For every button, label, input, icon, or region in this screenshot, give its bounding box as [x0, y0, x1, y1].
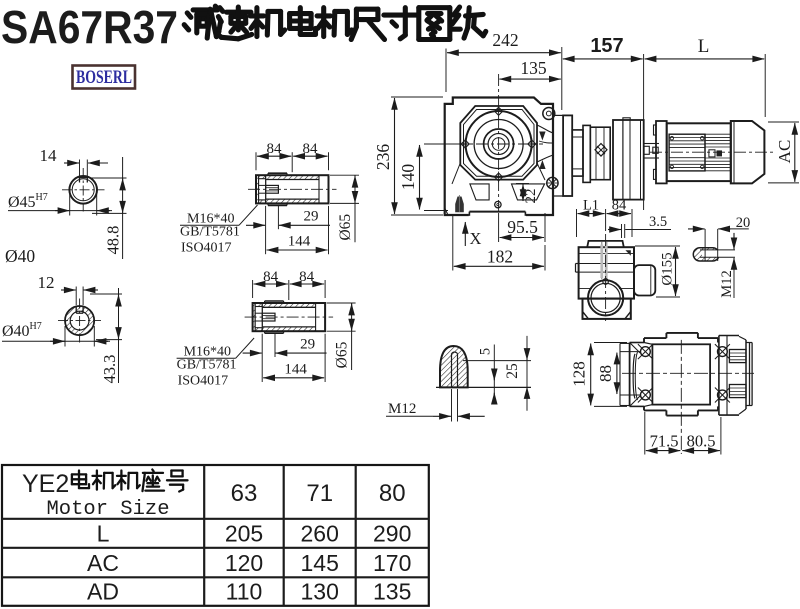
svg-text:L1: L1	[583, 198, 599, 214]
svg-text:63: 63	[231, 480, 258, 507]
svg-text:3.5: 3.5	[649, 214, 667, 230]
svg-text:144: 144	[284, 362, 307, 378]
svg-text:ISO4017: ISO4017	[178, 374, 229, 389]
svg-text:170: 170	[373, 550, 411, 576]
svg-text:290: 290	[373, 521, 411, 547]
svg-text:AC: AC	[87, 550, 119, 576]
svg-text:84: 84	[263, 269, 279, 285]
svg-text:14: 14	[40, 146, 58, 165]
svg-text:95.5: 95.5	[507, 217, 538, 237]
svg-text:Ø155: Ø155	[659, 252, 675, 285]
svg-text:ISO4017: ISO4017	[181, 241, 232, 256]
svg-text:22: 22	[523, 189, 539, 204]
svg-text:12: 12	[38, 273, 55, 292]
svg-text:120: 120	[225, 550, 263, 576]
svg-text:128: 128	[569, 361, 588, 387]
svg-text:157: 157	[590, 35, 623, 57]
svg-text:5: 5	[478, 348, 494, 355]
svg-text:29: 29	[304, 209, 319, 225]
svg-text:135: 135	[520, 58, 547, 78]
svg-text:84: 84	[299, 269, 315, 285]
svg-text:Motor Size: Motor Size	[46, 498, 169, 521]
svg-text:M12: M12	[719, 270, 735, 297]
svg-text:L: L	[698, 36, 710, 57]
svg-text:88: 88	[596, 365, 615, 382]
svg-text:AD: AD	[87, 579, 119, 605]
svg-text:80: 80	[379, 480, 406, 507]
svg-text:Ø40: Ø40	[5, 246, 35, 266]
svg-text:110: 110	[226, 579, 263, 605]
svg-text:80.5: 80.5	[687, 432, 716, 451]
svg-text:25: 25	[504, 363, 521, 379]
svg-text:84: 84	[612, 198, 627, 214]
svg-text:205: 205	[225, 521, 263, 547]
svg-text:71.5: 71.5	[650, 432, 679, 451]
svg-text:242: 242	[492, 30, 518, 50]
svg-text:84: 84	[267, 141, 283, 157]
svg-text:X: X	[470, 229, 482, 248]
svg-text:84: 84	[303, 141, 319, 157]
svg-text:48.8: 48.8	[103, 226, 122, 255]
svg-text:YE2: YE2	[22, 470, 69, 498]
svg-text:Ø65: Ø65	[334, 341, 351, 368]
svg-text:145: 145	[301, 550, 339, 576]
svg-text:H7: H7	[36, 192, 48, 203]
svg-text:H7: H7	[30, 321, 42, 332]
svg-text:SA67R37: SA67R37	[1, 1, 178, 53]
svg-text:L: L	[97, 521, 110, 547]
svg-text:260: 260	[301, 521, 339, 547]
svg-text:Ø40: Ø40	[2, 323, 30, 340]
svg-text:130: 130	[301, 579, 339, 605]
svg-text:Ø65: Ø65	[337, 214, 354, 241]
svg-text:20: 20	[736, 215, 751, 231]
svg-text:140: 140	[398, 164, 418, 191]
svg-text:GB/T5781: GB/T5781	[177, 358, 237, 373]
svg-text:71: 71	[306, 480, 333, 507]
svg-text:236: 236	[373, 144, 393, 171]
svg-text:BOSERL: BOSERL	[76, 68, 132, 88]
svg-text:AC: AC	[775, 140, 794, 164]
svg-text:Ø45: Ø45	[8, 194, 36, 211]
svg-text:144: 144	[288, 234, 311, 250]
svg-text:GB/T5781: GB/T5781	[180, 225, 240, 240]
svg-text:43.3: 43.3	[100, 355, 119, 384]
svg-text:135: 135	[373, 579, 411, 605]
svg-text:182: 182	[487, 247, 513, 267]
svg-text:M12: M12	[388, 401, 416, 417]
svg-text:29: 29	[300, 337, 315, 353]
